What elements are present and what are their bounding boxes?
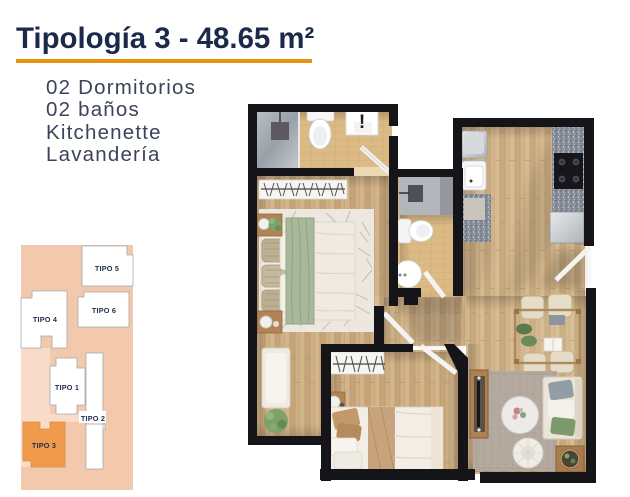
svg-text:!: ! <box>359 112 365 133</box>
